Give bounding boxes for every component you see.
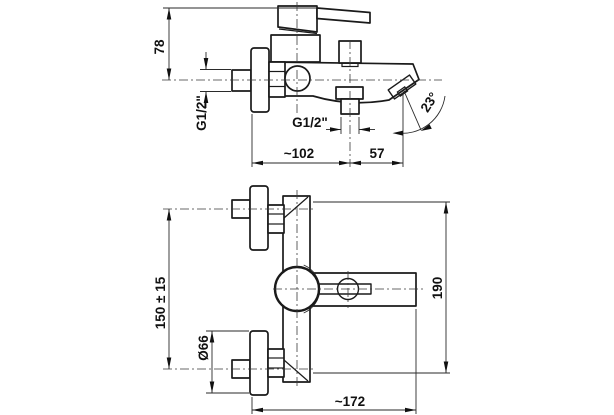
dim-inlet-thread-label: G1/2" <box>194 95 209 131</box>
mounting-nut-lower <box>268 349 284 377</box>
dim-78-label: 78 <box>152 39 167 55</box>
dim-23deg-label: 23° <box>418 90 442 115</box>
dim-190-label: 190 <box>430 277 445 300</box>
front-view: 150 ± 15 Ø66 ~172 190 <box>153 186 450 414</box>
spout-front <box>312 273 416 306</box>
dim-150: 150 ± 15 <box>153 209 171 369</box>
wall-pipe-stub-side <box>232 70 251 91</box>
dim-57-label: 57 <box>369 146 384 161</box>
cartridge-housing <box>271 35 320 62</box>
technical-drawing-page: 78 G1/2" G1/2" <box>0 0 614 415</box>
mounting-nut-side <box>269 62 285 97</box>
shower-outlet-collar <box>336 87 363 99</box>
wall-flange-lower <box>250 331 268 395</box>
ball-joint <box>285 66 310 91</box>
dim-66-label: Ø66 <box>196 335 211 361</box>
handle-lever <box>317 8 370 23</box>
side-view: 78 G1/2" G1/2" <box>152 2 445 167</box>
dim-outlet-thread-label: G1/2" <box>292 115 328 130</box>
faucet-technical-drawing: 78 G1/2" G1/2" <box>0 0 614 415</box>
handle-cap <box>278 6 317 32</box>
dim-150-label: 150 ± 15 <box>153 276 168 329</box>
dim-outlet-thread: G1/2" <box>292 115 375 134</box>
dim-102-label: ~102 <box>284 146 314 161</box>
dim-102-57: ~102 57 <box>252 93 403 167</box>
wall-flange-upper <box>250 186 268 250</box>
dim-172-label: ~172 <box>335 394 365 409</box>
dim-inlet-thread: G1/2" <box>194 52 231 131</box>
